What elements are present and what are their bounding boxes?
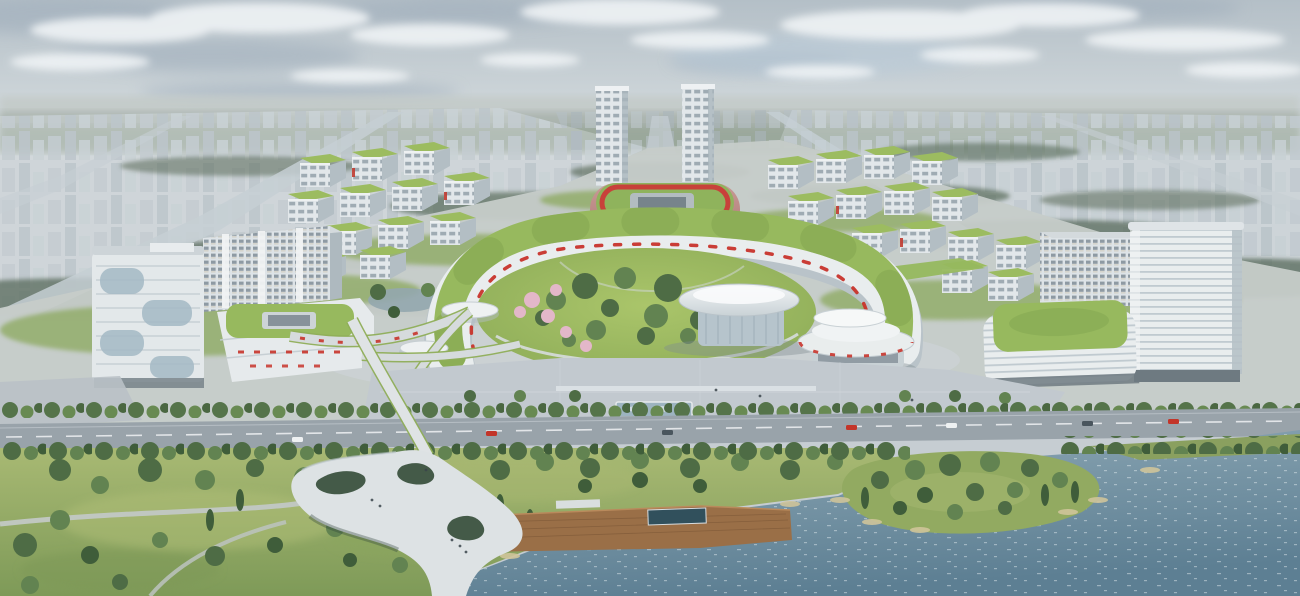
roadside-trees-front-right bbox=[1060, 436, 1300, 454]
rendered-scene bbox=[0, 0, 1300, 596]
architectural-aerial-rendering bbox=[0, 0, 1300, 596]
roadside-trees-front-left bbox=[0, 440, 910, 460]
curved-glass-tower-left bbox=[92, 243, 204, 388]
hospital-slab-left bbox=[203, 226, 342, 312]
ribbon-tower-right bbox=[1128, 222, 1244, 382]
podium-green-roof-right bbox=[982, 299, 1139, 388]
